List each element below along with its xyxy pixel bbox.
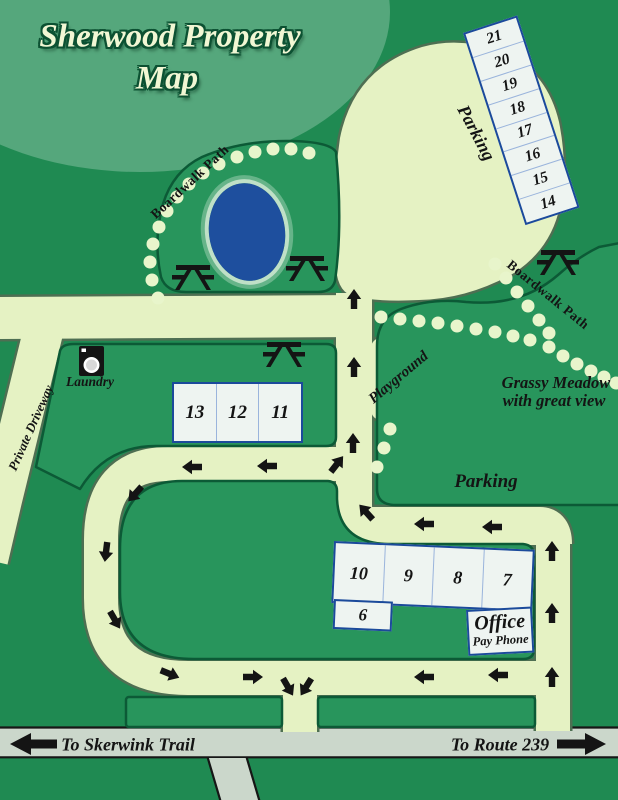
site-6: 6	[333, 599, 393, 632]
site-8: 8	[431, 547, 483, 607]
site-6-number: 6	[335, 601, 391, 629]
site-9: 9	[382, 545, 434, 605]
boardwalk-dot	[153, 221, 166, 234]
path-dot	[378, 442, 391, 455]
boardwalk-dot	[489, 326, 502, 339]
boardwalk-dot	[543, 327, 556, 340]
path-dot	[384, 423, 397, 436]
map-canvas: Sherwood Property Map 2120191817161514 1…	[0, 0, 618, 800]
site-12: 12	[216, 384, 259, 441]
bottom-island-right	[318, 697, 535, 727]
boardwalk-dot	[144, 256, 157, 269]
parking-lot-label: Parking	[454, 471, 517, 493]
boardwalk-dot	[413, 315, 426, 328]
boardwalk-dot	[147, 238, 160, 251]
boardwalk-dot	[557, 350, 570, 363]
boardwalk-dot	[249, 146, 262, 159]
grassy-meadow-label-line1: Grassy Meadow	[502, 373, 611, 393]
boardwalk-dot	[146, 274, 159, 287]
boardwalk-dot	[152, 292, 165, 305]
boardwalk-dot	[524, 334, 537, 347]
boardwalk-dot	[394, 313, 407, 326]
title-line-2: Map	[136, 61, 198, 98]
path-dot	[371, 461, 384, 474]
site-7: 7	[481, 550, 533, 610]
to-route-239-label: To Route 239	[451, 735, 549, 756]
grassy-meadow-label-line2: with great view	[503, 391, 606, 411]
pay-phone-label: Pay Phone	[469, 632, 532, 649]
sites-13-12-11: 131211	[172, 382, 303, 443]
laundry-label: Laundry	[66, 374, 114, 390]
boardwalk-dot	[451, 320, 464, 333]
boardwalk-dot	[522, 300, 535, 313]
boardwalk-dot	[533, 314, 546, 327]
site-13: 13	[174, 384, 216, 441]
bottom-island-left	[126, 697, 282, 727]
site-11: 11	[258, 384, 301, 441]
boardwalk-dot	[543, 341, 556, 354]
site-10: 10	[333, 543, 384, 603]
boardwalk-dot	[489, 258, 502, 271]
boardwalk-dot	[511, 286, 524, 299]
boardwalk-dot	[470, 323, 483, 336]
boardwalk-dot	[507, 330, 520, 343]
boardwalk-dot	[571, 358, 584, 371]
boardwalk-dot	[267, 143, 280, 156]
boardwalk-dot	[432, 317, 445, 330]
boardwalk-dot	[375, 311, 388, 324]
boardwalk-dot	[303, 147, 316, 160]
title-line-1: Sherwood Property	[39, 19, 300, 56]
laundry-icon	[79, 346, 104, 376]
boardwalk-dot	[285, 143, 298, 156]
office-box: Office Pay Phone	[466, 607, 534, 656]
to-skerwink-trail-label: To Skerwink Trail	[61, 735, 195, 756]
